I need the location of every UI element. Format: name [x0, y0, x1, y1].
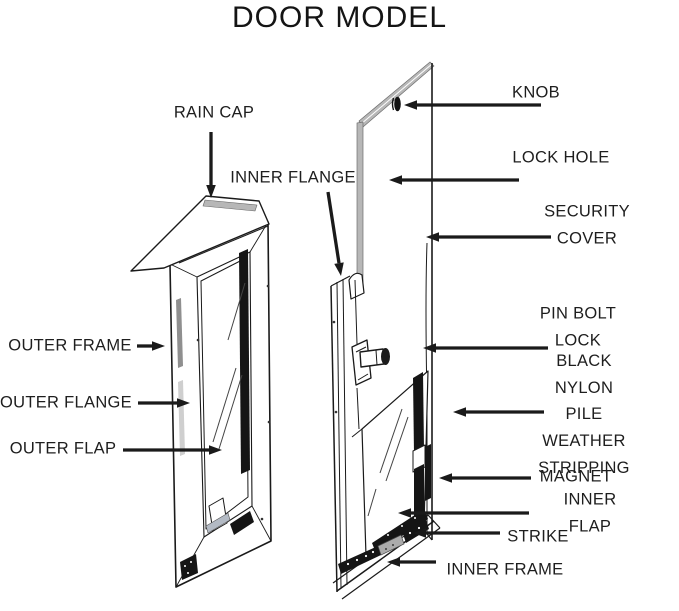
lock-pin-cap — [381, 348, 390, 365]
inner-flange-arrowhead — [334, 262, 343, 276]
speckle — [401, 525, 403, 527]
pin-bolt-lock-drawing — [352, 340, 390, 385]
flap-right-strip-upper — [413, 372, 424, 454]
door-model-diagram: DOOR MODEL — [0, 0, 679, 611]
knob-curl — [393, 98, 394, 110]
screw-dot — [267, 285, 270, 288]
frame-bottom-end — [428, 515, 440, 528]
lock-pin-body — [360, 349, 384, 367]
speckle — [347, 563, 349, 565]
speckle-dark — [385, 548, 387, 550]
magnet-bar — [425, 444, 431, 501]
cover-top-highlight — [361, 64, 432, 124]
speckle — [372, 551, 374, 553]
lock-hole-arrowhead — [389, 175, 402, 185]
screw-dot — [333, 321, 336, 324]
speckle — [387, 534, 389, 536]
knob-shape — [394, 97, 401, 111]
frame-top-tab — [349, 273, 364, 299]
exploded-door-drawing — [0, 0, 679, 611]
speckle — [365, 555, 367, 557]
weather-stripping-arrowhead — [453, 407, 466, 417]
speckle — [356, 559, 358, 561]
screw-dot — [197, 339, 200, 342]
speckle-dark — [392, 544, 394, 546]
speckle — [187, 572, 189, 574]
screw-dot — [335, 411, 338, 414]
screw-dot — [261, 518, 264, 521]
outer-frame-arrowhead — [152, 341, 165, 351]
speckle — [409, 532, 411, 534]
knob-arrowhead — [404, 100, 417, 110]
pin-bolt-lock-arrowhead — [423, 343, 436, 353]
speckle — [190, 561, 192, 563]
magnet-arrowhead — [439, 473, 452, 483]
frame-board-fill — [331, 277, 358, 592]
cover-left-edge — [357, 122, 363, 286]
speckle — [184, 565, 186, 567]
speckle — [418, 527, 420, 529]
speckle — [414, 517, 416, 519]
inner-flange-arrow — [328, 192, 339, 263]
screw-dot — [268, 421, 271, 424]
